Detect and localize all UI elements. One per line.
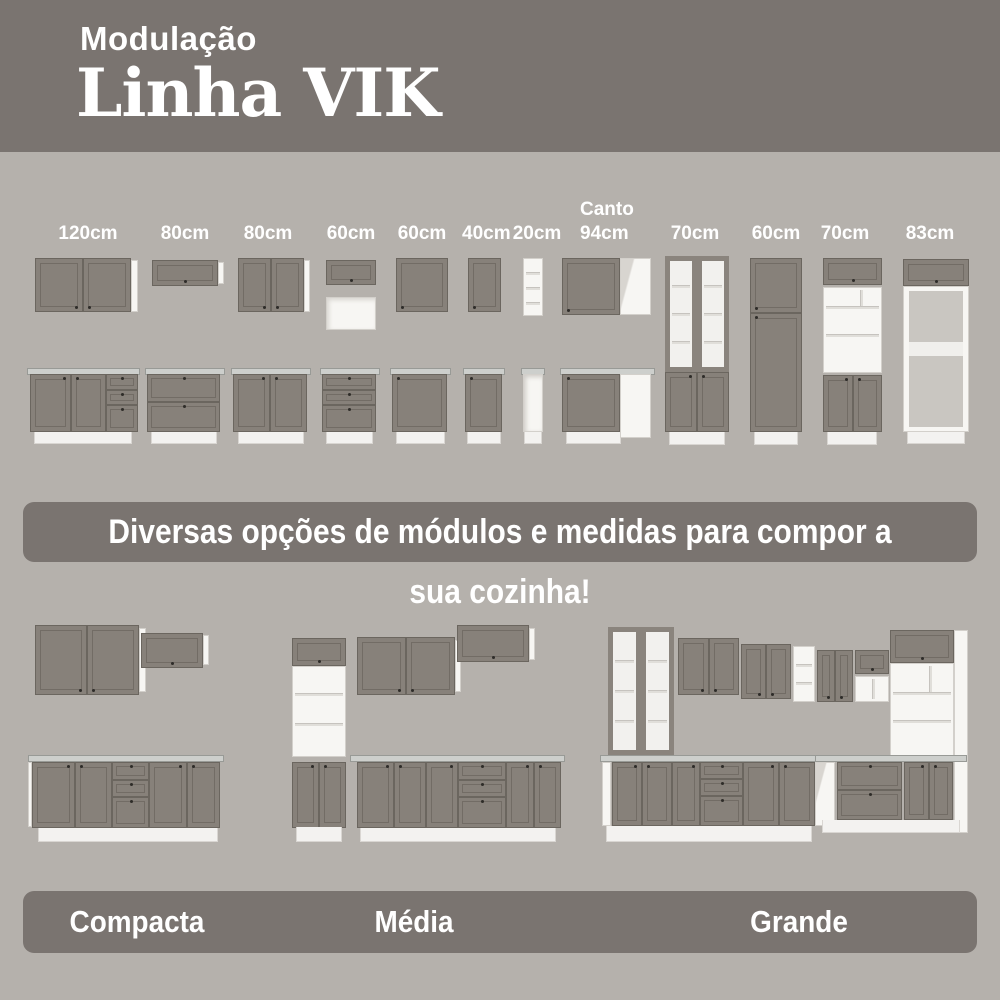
cabinet-door: [83, 258, 131, 312]
tagline-banner: Diversas opções de módulos e medidas par…: [23, 502, 977, 562]
corner-joint-panel: [815, 762, 835, 826]
cabinet-door: [468, 258, 501, 312]
drawer-front: [322, 405, 376, 432]
shelf: [648, 720, 667, 723]
shelf: [526, 287, 540, 290]
cabinet-door: [394, 762, 426, 828]
cabinet-door: [665, 372, 697, 432]
corner-angled-panel: [620, 258, 651, 315]
drawer-front: [458, 780, 506, 797]
header-banner: Modulação Linha VIK: [0, 0, 1000, 152]
shelf: [672, 313, 690, 316]
flip-door-cabinet: [855, 650, 889, 674]
drawer-front: [112, 762, 149, 780]
plinth: [524, 431, 542, 444]
cabinet-door: [233, 374, 270, 432]
cabinet-door: [904, 762, 929, 820]
countertop: [815, 755, 967, 762]
cabinet-side-panel: [602, 762, 611, 826]
modules-area: 120cm 80cm 80cm 60cm 60cm 40cm 20cm Cant…: [0, 152, 1000, 497]
cabinet-door: [709, 638, 739, 695]
open-tower: [890, 663, 954, 757]
cabinet-door: [697, 372, 729, 432]
size-label: 70cm: [661, 222, 729, 246]
cabinet-door: [835, 650, 853, 702]
shelf-divider: [860, 290, 863, 306]
cabinet-door: [30, 374, 71, 432]
shelf: [648, 690, 667, 693]
flip-door-cabinet: [292, 638, 346, 666]
shelf-divider: [929, 666, 932, 692]
drawer-front: [106, 374, 138, 390]
cabinet-door: [270, 374, 307, 432]
flip-door-cabinet: [903, 259, 969, 286]
cabinet-door: [743, 762, 779, 826]
plinth: [360, 827, 556, 842]
cabinet-door: [392, 374, 447, 432]
cabinet-door: [853, 375, 882, 432]
plinth: [467, 431, 501, 444]
cabinet-side-panel: [203, 635, 209, 665]
cabinet-door: [87, 625, 139, 695]
cabinet-door: [75, 762, 112, 828]
cabinet-door: [319, 762, 346, 828]
flip-door-cabinet: [326, 260, 376, 285]
drawer-front: [837, 790, 902, 820]
drawer-front: [147, 402, 220, 432]
shelf: [672, 285, 690, 288]
shelf: [704, 341, 722, 344]
glass-door: [697, 256, 729, 372]
cabinet-door: [506, 762, 534, 828]
cabinet-door: [35, 258, 83, 312]
cabinet-door: [187, 762, 220, 828]
plinth: [238, 431, 304, 444]
cabinet-door: [766, 644, 791, 699]
kitchens-area: [0, 600, 1000, 891]
page-title: Linha VIK: [76, 54, 440, 132]
cabinet-door: [678, 638, 709, 695]
cabinet-door: [750, 258, 802, 313]
size-label: 70cm: [815, 222, 875, 246]
open-base-unit: [523, 374, 543, 432]
drawer-front: [106, 405, 138, 432]
shelf: [295, 693, 343, 696]
shelf: [526, 272, 540, 275]
drawer-front: [147, 374, 220, 402]
kitchen-labels-banner: Compacta Média Grande: [23, 891, 977, 953]
drawer-front: [700, 796, 743, 826]
plinth: [669, 432, 725, 445]
drawer-front: [322, 390, 376, 405]
tall-side-panel: [954, 630, 968, 833]
cabinet-door: [396, 258, 448, 312]
glass-door: [641, 627, 674, 755]
canto-line2: 94cm: [580, 222, 629, 246]
glass-door: [665, 256, 697, 372]
flip-door-cabinet: [457, 625, 529, 662]
niche-interior: [909, 291, 963, 427]
cabinet-door: [35, 625, 87, 695]
shelf: [796, 682, 812, 685]
countertop: [28, 755, 224, 762]
corner-white-panel: [620, 374, 651, 438]
flip-door-cabinet: [152, 260, 218, 286]
kitchen-label-media: Média: [324, 891, 504, 953]
drawer-front: [700, 779, 743, 796]
flip-door-cabinet: [823, 258, 882, 285]
size-label: 120cm: [38, 222, 138, 246]
cabinet-side-panel: [304, 260, 310, 312]
cabinet-door: [238, 258, 271, 312]
plinth: [754, 432, 798, 445]
drawer-front: [322, 374, 376, 390]
cabinet-door: [823, 375, 853, 432]
shelf: [704, 285, 722, 288]
drawer-front: [112, 780, 149, 797]
size-label: 80cm: [235, 222, 301, 246]
cabinet-door: [779, 762, 815, 826]
cabinet-door: [562, 374, 620, 432]
shelf-divider: [872, 679, 875, 699]
cabinet-door: [71, 374, 106, 432]
drawer-front: [700, 762, 743, 779]
cabinet-door: [741, 644, 766, 699]
plinth: [326, 431, 373, 444]
plinth: [907, 432, 965, 444]
cabinet-door: [271, 258, 304, 312]
cabinet-door: [465, 374, 502, 432]
size-label: 80cm: [152, 222, 218, 246]
plinth: [606, 826, 812, 842]
drawer-front: [112, 797, 149, 828]
shelf: [826, 306, 879, 309]
size-label: 83cm: [900, 222, 960, 246]
kitchen-label-compacta: Compacta: [47, 891, 227, 953]
drawer-front: [106, 390, 138, 405]
drawer-front: [458, 762, 506, 780]
shelf: [648, 660, 667, 663]
countertop: [350, 755, 565, 762]
cabinet-door: [929, 762, 953, 820]
flip-door-cabinet: [141, 633, 203, 668]
cabinet-door: [534, 762, 561, 828]
cabinet-door: [562, 258, 620, 315]
size-label: 40cm: [462, 222, 506, 246]
shelf: [615, 720, 634, 723]
cabinet-door: [426, 762, 458, 828]
header-kicker: Modulação: [80, 20, 257, 58]
canto-line1: Canto: [580, 198, 634, 222]
shelf: [295, 723, 343, 726]
open-section: [823, 287, 882, 373]
cabinet-door: [750, 313, 802, 432]
size-label: 60cm: [325, 222, 377, 246]
open-niche-cabinet: [326, 297, 376, 330]
cabinet-door: [642, 762, 672, 826]
cabinet-door: [612, 762, 642, 826]
plinth: [34, 431, 132, 444]
cabinet-side-panel: [218, 262, 224, 284]
countertop: [600, 755, 817, 762]
cabinet-side-panel: [529, 628, 535, 660]
plinth: [296, 827, 342, 842]
shelf: [704, 313, 722, 316]
shelf: [893, 692, 951, 695]
size-label: 20cm: [512, 222, 562, 246]
shelf: [526, 302, 540, 305]
cabinet-door: [406, 637, 455, 695]
shelf: [826, 334, 879, 337]
shelf: [893, 720, 951, 723]
kitchen-label-grande: Grande: [709, 891, 889, 953]
plinth: [38, 827, 218, 842]
plinth: [396, 431, 445, 444]
plinth: [566, 431, 621, 444]
cabinet-door: [357, 762, 394, 828]
cabinet-door: [32, 762, 75, 828]
cabinet-door: [357, 637, 406, 695]
open-tower: [292, 666, 346, 757]
niche-shelf: [909, 342, 963, 356]
cabinet-door: [672, 762, 700, 826]
open-tall-niche: [903, 286, 969, 432]
drawer-front: [458, 797, 506, 828]
cabinet-door: [817, 650, 835, 702]
shelf: [796, 664, 812, 667]
size-label: 60cm: [747, 222, 805, 246]
shelf: [672, 341, 690, 344]
plinth: [827, 432, 877, 445]
cabinet-side-panel: [131, 260, 138, 312]
plinth: [822, 820, 960, 833]
open-cubby: [855, 676, 889, 702]
glass-door: [608, 627, 641, 755]
cabinet-door: [292, 762, 319, 828]
plinth: [151, 431, 217, 444]
shelf: [615, 690, 634, 693]
cabinet-door: [149, 762, 187, 828]
shelf: [615, 660, 634, 663]
corner-open-shelf: [793, 646, 815, 702]
drawer-front: [837, 762, 902, 790]
open-shelf-unit: [523, 258, 543, 316]
size-label: 60cm: [396, 222, 448, 246]
flip-door-cabinet: [890, 630, 954, 663]
